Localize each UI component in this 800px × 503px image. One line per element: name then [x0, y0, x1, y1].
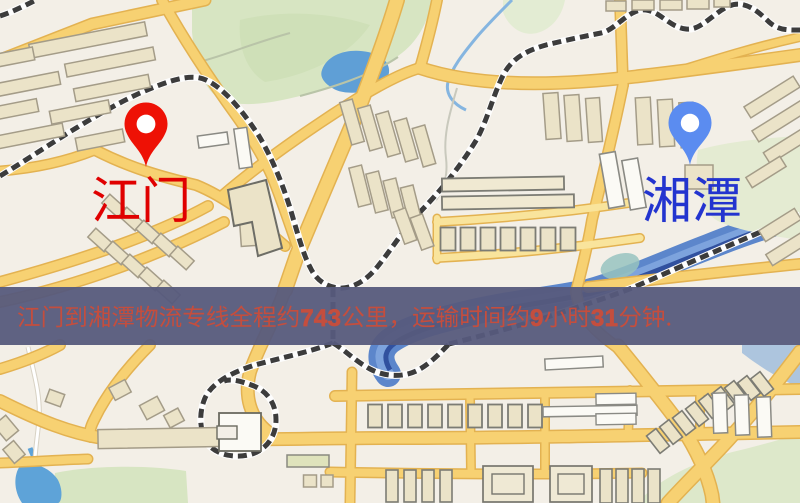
svg-text:7: 7	[300, 305, 313, 332]
svg-text:3: 3	[591, 305, 604, 332]
svg-text:9: 9	[530, 305, 543, 332]
svg-text:3: 3	[328, 305, 341, 332]
svg-text:4: 4	[314, 305, 328, 332]
svg-text:1: 1	[605, 305, 618, 332]
